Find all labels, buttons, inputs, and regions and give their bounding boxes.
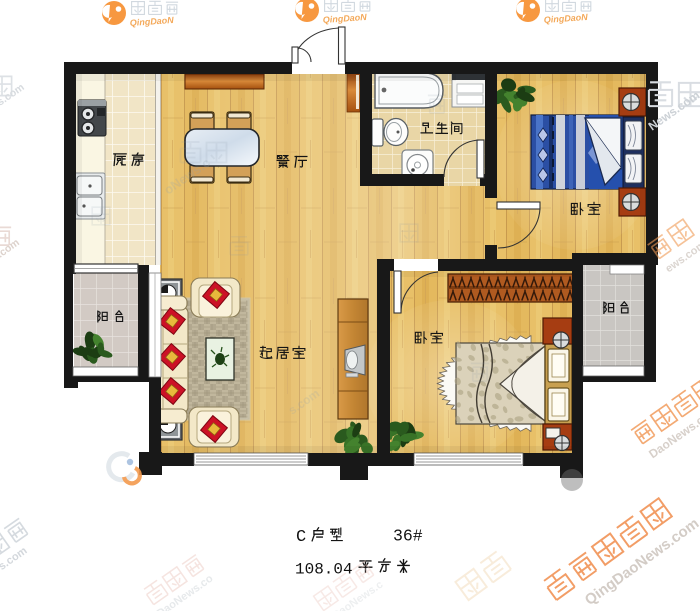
svg-text:108.04: 108.04 <box>295 561 353 579</box>
svg-text:36#: 36# <box>393 527 423 546</box>
svg-text:C: C <box>296 528 306 547</box>
